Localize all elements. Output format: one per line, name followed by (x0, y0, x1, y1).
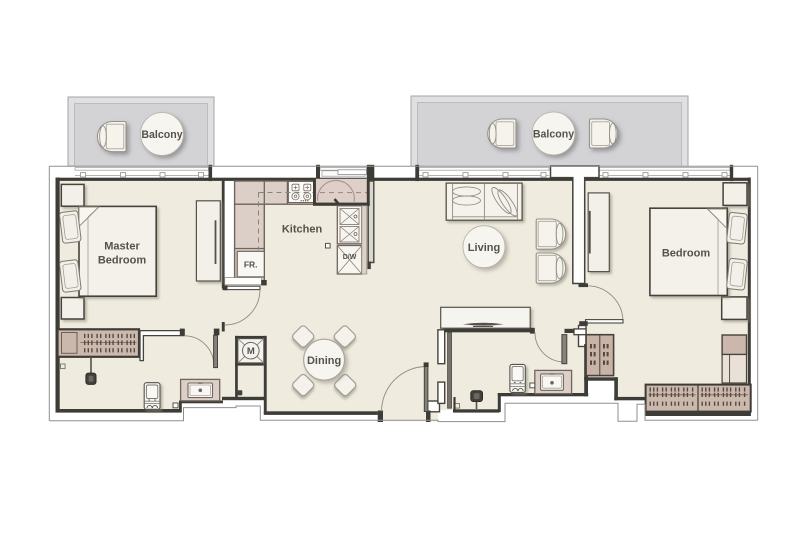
svg-text:FR.: FR. (244, 260, 258, 270)
svg-text:Master: Master (104, 241, 140, 253)
svg-text:Dining: Dining (307, 355, 341, 367)
svg-text:Balcony: Balcony (533, 128, 574, 140)
svg-text:M: M (247, 346, 255, 357)
svg-text:D/W: D/W (343, 254, 357, 261)
svg-text:Bedroom: Bedroom (662, 247, 711, 259)
svg-text:Kitchen: Kitchen (282, 224, 323, 236)
svg-text:Balcony: Balcony (141, 129, 182, 141)
svg-text:Living: Living (468, 242, 500, 254)
svg-text:Bedroom: Bedroom (98, 255, 147, 267)
